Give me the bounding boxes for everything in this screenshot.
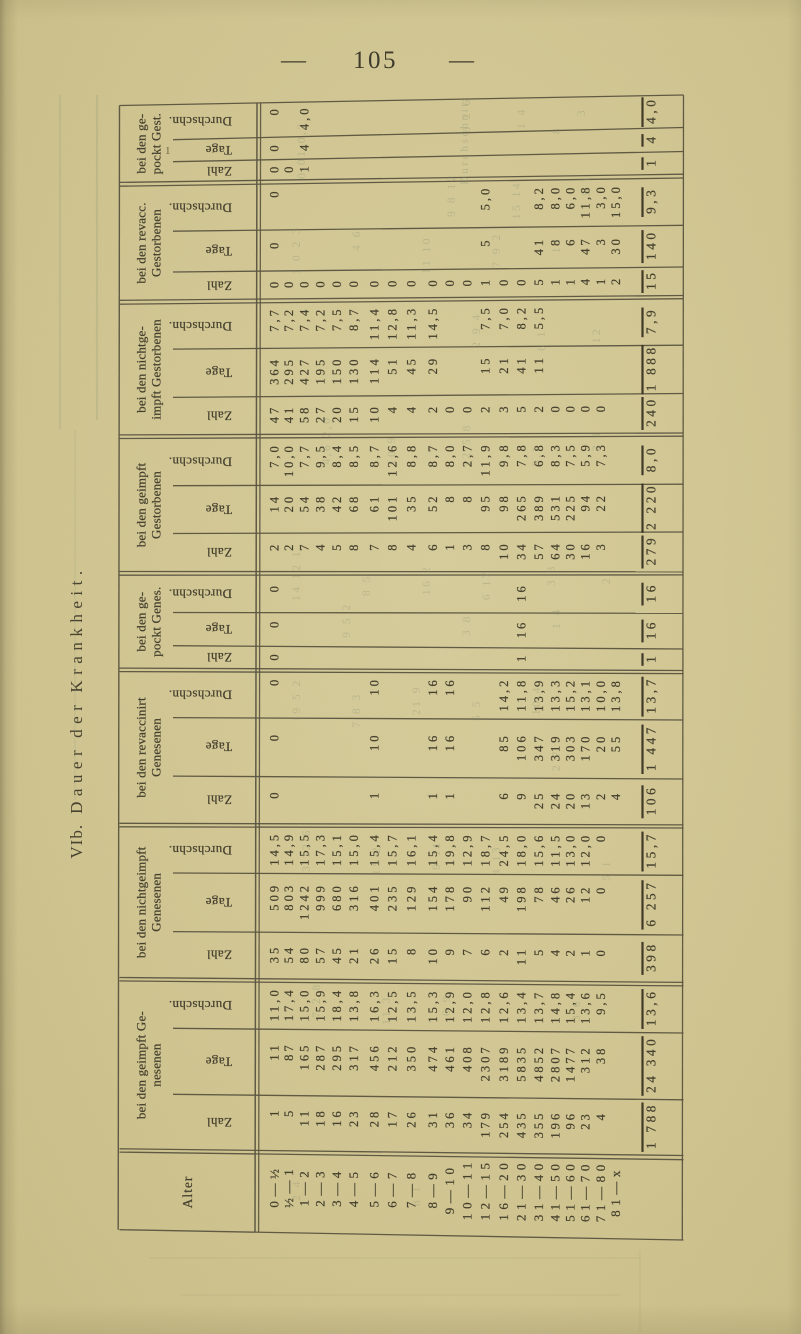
svg-text:13,5: 13,5 — [404, 992, 418, 1023]
svg-text:2—3: 2—3 — [312, 1172, 327, 1207]
svg-text:13: 13 — [551, 237, 563, 254]
svg-text:14,5: 14,5 — [426, 309, 440, 340]
svg-text:Durchschn.: Durchschn. — [168, 201, 232, 216]
svg-text:Gestorbenen: Gestorbenen — [149, 471, 164, 539]
svg-text:240: 240 — [643, 399, 658, 426]
svg-text:9,1: 9,1 — [531, 444, 543, 466]
svg-text:0: 0 — [313, 281, 327, 287]
svg-text:1 447: 1 447 — [643, 727, 658, 771]
svg-text:0: 0 — [267, 192, 281, 198]
svg-text:6,0: 6,0 — [563, 188, 577, 210]
svg-text:12,9: 12,9 — [460, 836, 474, 867]
svg-text:12,6: 12,6 — [497, 992, 511, 1023]
svg-text:Durchschn.: Durchschn. — [168, 843, 232, 858]
svg-text:8,7: 8,7 — [367, 446, 381, 468]
svg-text:7,4: 7,4 — [297, 309, 311, 331]
svg-text:15,0: 15,0 — [347, 835, 361, 866]
svg-text:12: 12 — [591, 327, 603, 344]
svg-text:0: 0 — [267, 622, 281, 628]
svg-text:7,2: 7,2 — [282, 310, 296, 332]
svg-text:13,7: 13,7 — [532, 993, 546, 1024]
svg-text:5: 5 — [282, 1111, 296, 1117]
svg-text:12,8: 12,8 — [478, 992, 492, 1023]
svg-text:2: 2 — [497, 950, 511, 956]
svg-text:0,01 0,2: 0,01 0,2 — [296, 121, 308, 178]
svg-text:6: 6 — [426, 545, 440, 551]
svg-text:179: 179 — [478, 1113, 492, 1138]
svg-text:8—9: 8—9 — [425, 1173, 440, 1208]
svg-text:408: 408 — [460, 1047, 474, 1072]
svg-text:999: 999 — [313, 886, 327, 911]
svg-text:1: 1 — [443, 544, 457, 550]
svg-text:12,0: 12,0 — [460, 992, 474, 1023]
svg-text:9 5 2: 9 5 2 — [341, 602, 353, 638]
svg-text:279: 279 — [643, 538, 658, 565]
svg-text:0: 0 — [548, 406, 562, 412]
svg-text:bei den revacc.: bei den revacc. — [134, 202, 149, 283]
svg-text:1: 1 — [594, 279, 608, 285]
svg-text:Tage: Tage — [205, 244, 232, 259]
svg-text:317: 317 — [347, 1046, 361, 1071]
svg-text:11 3: 11 3 — [381, 995, 393, 1025]
svg-text:4: 4 — [385, 406, 399, 413]
svg-text:Zahl: Zahl — [207, 164, 232, 179]
svg-text:3 12 6: 3 12 6 — [301, 828, 313, 872]
svg-text:6—7: 6—7 — [384, 1172, 399, 1208]
svg-text:0: 0 — [443, 280, 457, 286]
svg-text:13,1: 13,1 — [578, 681, 592, 712]
svg-text:8: 8 — [385, 545, 399, 551]
svg-text:316: 316 — [347, 886, 361, 911]
svg-text:3 3: 3 3 — [546, 564, 558, 586]
svg-text:5,0: 5,0 — [478, 189, 492, 211]
svg-text:8: 8 — [404, 949, 418, 955]
svg-text:bei den nichtge-: bei den nichtge- — [134, 326, 149, 413]
svg-text:12,0: 12,0 — [578, 836, 592, 867]
svg-text:212: 212 — [385, 1047, 399, 1072]
svg-text:427: 427 — [297, 360, 311, 385]
svg-text:7,7: 7,7 — [267, 310, 281, 332]
svg-text:bei den ge-: bei den ge- — [134, 592, 149, 652]
svg-text:3: 3 — [497, 407, 511, 413]
svg-text:7,7: 7,7 — [297, 446, 311, 468]
svg-text:364: 364 — [267, 359, 281, 385]
svg-text:350: 350 — [404, 1047, 418, 1072]
svg-text:461: 461 — [443, 1047, 457, 1072]
svg-text:0: 0 — [594, 836, 608, 842]
svg-text:8,2: 8,2 — [514, 308, 528, 330]
svg-text:0: 0 — [497, 280, 511, 286]
svg-text:0: 0 — [426, 280, 440, 286]
svg-text:4 6: 4 6 — [351, 229, 363, 251]
svg-text:Zahl: Zahl — [207, 409, 232, 424]
svg-text:2 9 4: 2 9 4 — [471, 312, 483, 348]
svg-text:Zahl: Zahl — [207, 278, 232, 293]
svg-text:2: 2 — [563, 950, 577, 956]
svg-text:10,0: 10,0 — [282, 446, 296, 477]
svg-text:8,0: 8,0 — [443, 446, 457, 468]
svg-text:Tage: Tage — [205, 502, 232, 517]
svg-text:Durchschn.: Durchschn. — [168, 998, 232, 1013]
svg-text:pockt Genes.: pockt Genes. — [149, 587, 164, 657]
svg-text:bei den geimpft Ge-: bei den geimpft Ge- — [134, 1011, 149, 1119]
svg-text:4,0: 4,0 — [643, 100, 658, 124]
svg-text:Durchschn.: Durchschn. — [168, 114, 232, 129]
svg-text:0: 0 — [267, 167, 281, 173]
svg-text:0: 0 — [267, 145, 281, 151]
svg-text:5: 5 — [532, 950, 546, 956]
svg-text:303: 303 — [563, 737, 577, 762]
svg-text:10,9: 10,9 — [386, 435, 398, 465]
svg-text:4: 4 — [594, 1114, 608, 1121]
svg-text:509: 509 — [267, 886, 281, 911]
svg-text:1 888: 1 888 — [643, 347, 658, 391]
svg-text:5: 5 — [330, 545, 344, 551]
svg-text:4: 4 — [404, 406, 418, 413]
svg-text:295: 295 — [330, 1046, 344, 1071]
svg-text:456: 456 — [367, 1046, 381, 1071]
svg-text:4: 4 — [548, 949, 562, 956]
svg-text:7,9: 7,9 — [643, 310, 658, 334]
svg-text:Genesenen: Genesenen — [149, 718, 164, 777]
svg-text:19 5 2: 19 5 2 — [291, 678, 303, 722]
svg-text:3: 3 — [460, 544, 474, 550]
svg-text:19,8: 19,8 — [443, 835, 457, 866]
svg-text:8,0: 8,0 — [548, 188, 562, 210]
svg-text:3 1: 3 1 — [591, 429, 603, 451]
svg-text:112: 112 — [478, 887, 492, 912]
svg-text:2: 2 — [609, 279, 623, 285]
svg-text:1 788: 1 788 — [643, 1105, 658, 1149]
svg-text:Tage: Tage — [205, 143, 232, 158]
svg-text:0: 0 — [330, 281, 344, 287]
svg-text:312: 312 — [578, 1048, 592, 1073]
svg-text:18,0: 18,0 — [514, 836, 528, 867]
svg-text:7 2 8: 7 2 8 — [311, 982, 323, 1018]
svg-text:13,3: 13,3 — [548, 681, 562, 712]
svg-text:0: 0 — [514, 280, 528, 286]
svg-text:5: 5 — [514, 406, 528, 412]
svg-text:16 2: 16 2 — [421, 565, 433, 595]
svg-text:15,0: 15,0 — [609, 187, 623, 218]
svg-text:225: 225 — [563, 496, 577, 521]
svg-text:0: 0 — [267, 793, 281, 799]
svg-text:7,2: 7,2 — [313, 310, 327, 332]
svg-text:12 5 8: 12 5 8 — [461, 423, 473, 467]
svg-text:Zahl: Zahl — [207, 948, 232, 963]
svg-text:1: 1 — [267, 1111, 281, 1117]
svg-text:8 2 6: 8 2 6 — [461, 97, 473, 133]
svg-text:7: 7 — [460, 949, 474, 955]
svg-text:2 220: 2 220 — [643, 486, 658, 530]
svg-text:2: 2 — [594, 794, 608, 800]
svg-text:4—5: 4—5 — [346, 1172, 361, 1207]
svg-text:2 7: 2 7 — [551, 749, 563, 771]
svg-text:254: 254 — [497, 1112, 511, 1138]
svg-text:3: 3 — [576, 108, 588, 116]
svg-text:9,3: 9,3 — [643, 190, 658, 214]
svg-text:0: 0 — [282, 167, 296, 173]
svg-text:Tage: Tage — [205, 895, 232, 910]
svg-text:4,6 2,0: 4,6 2,0 — [321, 415, 333, 464]
svg-text:114: 114 — [367, 359, 381, 385]
svg-text:0—½: 0—½ — [266, 1169, 281, 1208]
svg-text:10,0: 10,0 — [594, 681, 608, 712]
svg-text:1 0 2 3: 1 0 2 3 — [291, 225, 303, 274]
svg-text:6 257: 6 257 — [643, 883, 658, 927]
svg-text:0: 0 — [267, 282, 281, 288]
svg-text:12,8: 12,8 — [385, 309, 399, 340]
svg-text:401: 401 — [367, 886, 381, 911]
svg-text:8 1: 8 1 — [411, 1184, 423, 1206]
svg-text:8,2: 8,2 — [532, 188, 546, 210]
svg-text:7,0: 7,0 — [497, 308, 511, 330]
svg-text:14 12 1: 14 12 1 — [291, 549, 303, 601]
svg-text:15,7: 15,7 — [385, 835, 399, 866]
svg-text:16,3: 16,3 — [367, 991, 381, 1022]
svg-text:9,5: 9,5 — [594, 993, 608, 1015]
svg-text:Durchschn.: Durchschn. — [168, 319, 232, 334]
svg-text:8,0: 8,0 — [643, 448, 658, 472]
svg-text:0: 0 — [385, 281, 399, 287]
svg-text:165: 165 — [297, 1046, 311, 1071]
svg-text:Zahl: Zahl — [207, 545, 232, 560]
svg-text:355: 355 — [532, 1114, 546, 1139]
svg-text:1: 1 — [367, 793, 381, 799]
svg-text:15 14: 15 14 — [511, 181, 523, 219]
svg-text:0: 0 — [594, 406, 608, 412]
svg-text:1: 1 — [443, 793, 457, 799]
svg-text:14,8: 14,8 — [548, 993, 562, 1024]
svg-text:9 8 12: 9 8 12 — [446, 173, 458, 217]
svg-text:0: 0 — [282, 282, 296, 288]
svg-text:8 5: 8 5 — [361, 574, 373, 596]
svg-text:impft Gestorbenen: impft Gestorbenen — [149, 319, 164, 420]
svg-text:195: 195 — [313, 360, 327, 385]
svg-text:5: 5 — [532, 279, 546, 285]
svg-text:bei den nichtgeimpft: bei den nichtgeimpft — [134, 846, 149, 958]
svg-text:5 1: 5 1 — [601, 859, 613, 881]
svg-text:106: 106 — [514, 736, 528, 761]
svg-text:4: 4 — [313, 544, 327, 551]
svg-text:5—6: 5—6 — [366, 1172, 381, 1208]
svg-text:7: 7 — [367, 545, 381, 551]
svg-text:8,8: 8,8 — [404, 446, 418, 468]
svg-text:5,5: 5,5 — [532, 308, 546, 330]
svg-text:3: 3 — [594, 544, 608, 550]
svg-text:Durchschn.: Durchschn. — [168, 688, 232, 703]
svg-text:4: 4 — [404, 544, 418, 551]
svg-text:170: 170 — [578, 737, 592, 762]
svg-text:0: 0 — [404, 281, 418, 287]
svg-text:435: 435 — [514, 1113, 528, 1138]
svg-text:0: 0 — [267, 654, 281, 660]
svg-text:0: 0 — [443, 407, 457, 413]
svg-text:196: 196 — [548, 1114, 562, 1139]
svg-text:bei den ge-: bei den ge- — [134, 114, 149, 174]
svg-text:0: 0 — [267, 735, 281, 741]
svg-text:14,2: 14,2 — [497, 681, 511, 712]
svg-text:6: 6 — [478, 949, 492, 955]
svg-text:5 1: 5 1 — [581, 174, 593, 196]
svg-text:3 6: 3 6 — [571, 999, 583, 1021]
svg-text:9 11: 9 11 — [431, 840, 443, 870]
svg-text:0: 0 — [594, 950, 608, 956]
svg-text:Gestorbenen: Gestorbenen — [149, 209, 164, 277]
svg-text:14,9: 14,9 — [282, 835, 296, 866]
svg-text:Durchschn.: Durchschn. — [168, 587, 232, 602]
svg-text:3: 3 — [594, 239, 608, 245]
svg-text:15,6: 15,6 — [532, 836, 546, 867]
svg-text:8,5: 8,5 — [347, 446, 361, 468]
svg-text:Alter: Alter — [180, 1176, 195, 1209]
svg-text:2: 2 — [532, 406, 546, 412]
svg-text:0: 0 — [267, 586, 281, 592]
svg-text:bei den revaccinirt: bei den revaccinirt — [134, 697, 149, 798]
svg-text:265: 265 — [514, 496, 528, 521]
svg-text:130: 130 — [347, 360, 361, 385]
svg-text:287: 287 — [313, 1046, 327, 1071]
svg-text:Durchschn.: Durchschn. — [168, 455, 232, 470]
svg-text:9: 9 — [514, 794, 528, 800]
svg-text:6 9: 6 9 — [441, 994, 453, 1016]
svg-text:0: 0 — [367, 281, 381, 287]
svg-text:3,0: 3,0 — [594, 187, 608, 209]
svg-text:13,8: 13,8 — [609, 681, 623, 712]
svg-text:389: 389 — [532, 496, 546, 521]
svg-text:1: 1 — [643, 656, 658, 663]
svg-text:0: 0 — [460, 280, 474, 286]
svg-text:3—4: 3—4 — [329, 1171, 344, 1207]
svg-text:1: 1 — [426, 793, 440, 799]
svg-text:7,0: 7,0 — [267, 446, 281, 468]
svg-text:9,8: 9,8 — [497, 445, 511, 467]
svg-text:803: 803 — [282, 886, 296, 911]
svg-text:347: 347 — [532, 736, 546, 761]
svg-text:106: 106 — [643, 788, 658, 815]
svg-text:0: 0 — [267, 243, 281, 249]
svg-text:10 4: 10 4 — [531, 685, 543, 715]
svg-text:1 4: 1 4 — [551, 607, 563, 629]
svg-text:8: 8 — [443, 496, 457, 502]
svg-text:6: 6 — [563, 240, 577, 246]
svg-text:Zahl: Zahl — [207, 1115, 232, 1130]
svg-text:0: 0 — [594, 888, 608, 894]
svg-text:2: 2 — [267, 545, 281, 551]
svg-text:0: 0 — [578, 406, 592, 412]
svg-text:nesenen: nesenen — [149, 1043, 164, 1087]
svg-text:15,0: 15,0 — [297, 991, 311, 1022]
svg-text:8,3: 8,3 — [548, 445, 562, 467]
svg-text:1: 1 — [563, 279, 577, 285]
svg-text:129: 129 — [404, 887, 418, 912]
svg-text:4: 4 — [643, 136, 658, 143]
svg-text:17,3: 17,3 — [313, 835, 327, 866]
svg-text:Tage: Tage — [205, 622, 232, 637]
svg-text:0: 0 — [460, 407, 474, 413]
svg-text:0: 0 — [267, 109, 281, 115]
svg-text:6 1: 6 1 — [536, 329, 548, 351]
svg-text:15,2: 15,2 — [563, 681, 577, 712]
svg-text:1: 1 — [478, 280, 492, 286]
svg-text:21 9: 21 9 — [411, 685, 423, 715]
svg-text:13,8: 13,8 — [347, 991, 361, 1022]
svg-text:2: 2 — [426, 407, 440, 413]
svg-text:Zahl: Zahl — [207, 793, 232, 808]
svg-text:2: 2 — [601, 576, 613, 584]
svg-text:7,5: 7,5 — [563, 445, 577, 467]
svg-text:101: 101 — [385, 497, 399, 522]
svg-text:6: 6 — [497, 793, 511, 799]
svg-text:Tage: Tage — [205, 740, 232, 755]
svg-text:bei den geimpft: bei den geimpft — [134, 463, 149, 548]
svg-text:0: 0 — [267, 680, 281, 686]
svg-text:154: 154 — [426, 886, 440, 912]
svg-text:15 2: 15 2 — [371, 845, 383, 875]
svg-text:140: 140 — [643, 233, 658, 260]
svg-text:Tage: Tage — [205, 366, 232, 381]
svg-text:Genesenen: Genesenen — [149, 873, 164, 932]
svg-text:8,7: 8,7 — [426, 446, 440, 468]
svg-text:16,1: 16,1 — [404, 835, 418, 866]
svg-text:150: 150 — [330, 360, 344, 385]
svg-text:4: 4 — [578, 278, 592, 285]
svg-text:235: 235 — [385, 887, 399, 912]
svg-text:Zahl: Zahl — [207, 650, 232, 665]
svg-text:1 4: 1 4 — [516, 107, 528, 129]
svg-text:3 8: 3 8 — [461, 614, 473, 636]
svg-text:4 13: 4 13 — [491, 845, 503, 875]
svg-text:1: 1 — [514, 656, 528, 662]
svg-text:11 10: 11 10 — [421, 236, 433, 274]
svg-text:8: 8 — [551, 126, 563, 134]
svg-text:5 5: 5 5 — [471, 699, 483, 721]
svg-text:1: 1 — [548, 279, 562, 285]
svg-text:198: 198 — [514, 887, 528, 912]
svg-text:178: 178 — [443, 887, 457, 912]
svg-text:7,5: 7,5 — [330, 310, 344, 332]
svg-text:1: 1 — [578, 950, 592, 956]
svg-text:2: 2 — [478, 407, 492, 413]
svg-text:pockt Gest.: pockt Gest. — [149, 113, 164, 174]
svg-text:14,5: 14,5 — [267, 835, 281, 866]
svg-text:474: 474 — [426, 1046, 440, 1072]
svg-text:15,1: 15,1 — [330, 835, 344, 866]
svg-text:398: 398 — [643, 944, 658, 971]
svg-text:0: 0 — [563, 406, 577, 412]
svg-text:Tage: Tage — [205, 1054, 232, 1069]
svg-text:9: 9 — [443, 949, 457, 955]
svg-text:8: 8 — [478, 544, 492, 550]
svg-text:15,3: 15,3 — [426, 992, 440, 1023]
svg-text:13,0: 13,0 — [563, 836, 577, 867]
svg-text:680: 680 — [330, 886, 344, 911]
svg-text:8,7: 8,7 — [347, 309, 361, 331]
svg-text:4: 4 — [609, 793, 623, 800]
svg-text:2 4: 2 4 — [291, 1179, 303, 1201]
svg-text:0: 0 — [347, 281, 361, 287]
svg-text:6 17: 6 17 — [481, 570, 493, 600]
svg-text:8: 8 — [460, 496, 474, 502]
svg-text:0: 0 — [297, 282, 311, 288]
svg-text:531: 531 — [548, 496, 562, 521]
svg-text:7 9 2: 7 9 2 — [491, 232, 503, 268]
svg-text:7 8 3: 7 8 3 — [351, 692, 363, 728]
svg-text:295: 295 — [282, 360, 296, 385]
svg-text:7,8: 7,8 — [514, 445, 528, 467]
svg-text:8: 8 — [347, 545, 361, 551]
svg-text:1: 1 — [643, 160, 658, 167]
